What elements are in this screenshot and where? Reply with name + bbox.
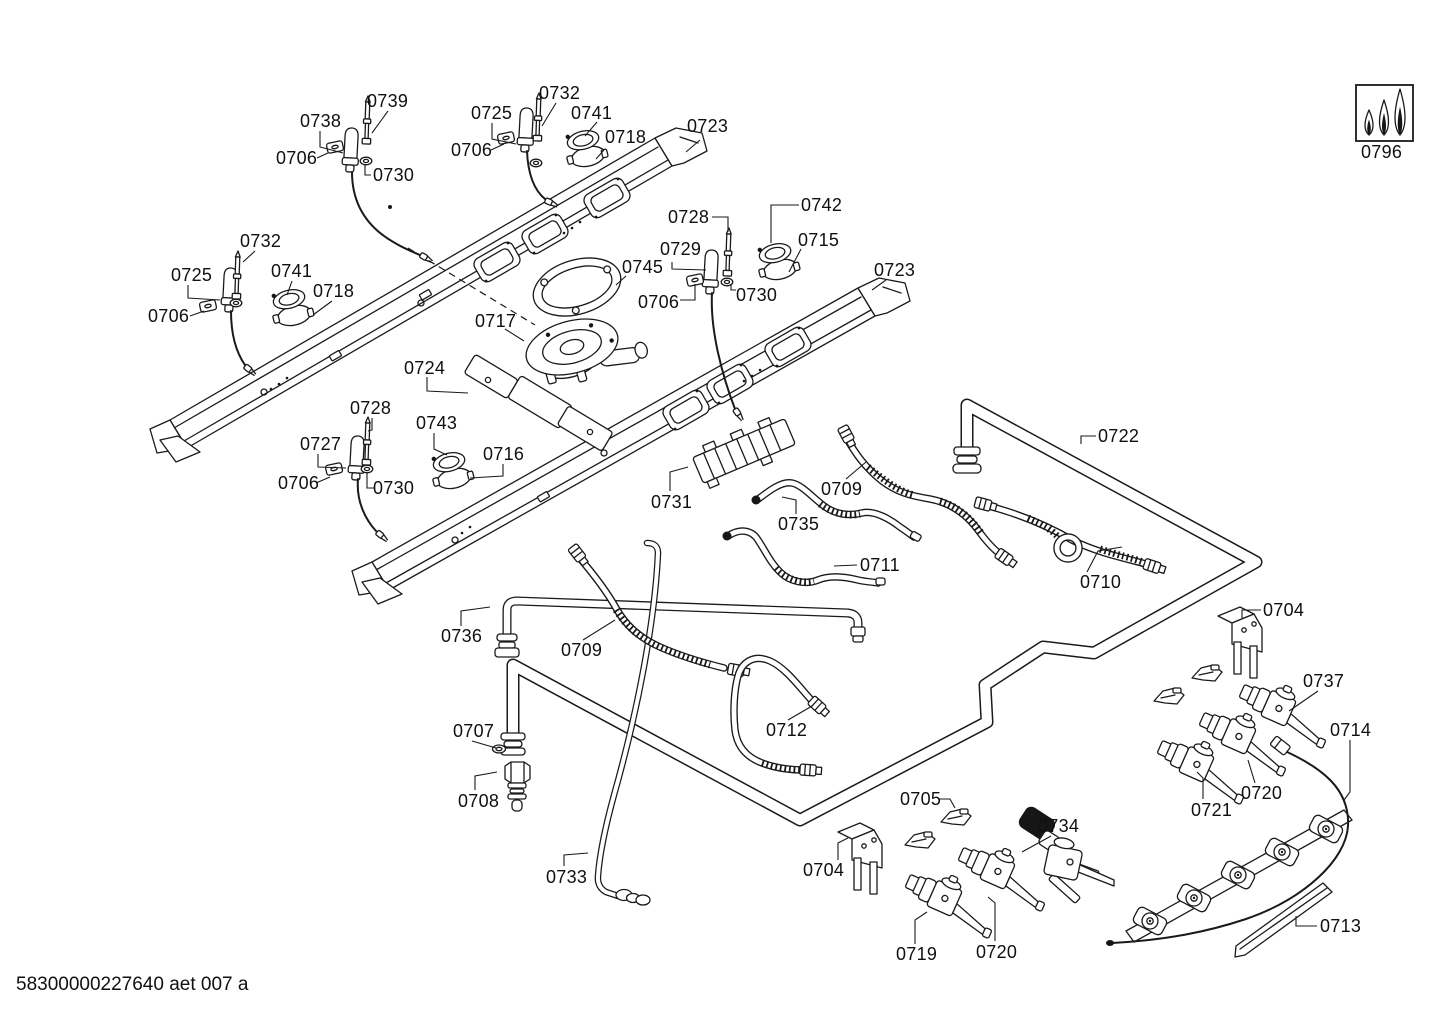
part-label-0737: 0737 [1303, 672, 1344, 690]
part-label-0713: 0713 [1320, 917, 1361, 935]
part-label-0721: 0721 [1191, 801, 1232, 819]
leader-line-0720 [1248, 760, 1255, 783]
leader-line-0731 [670, 467, 688, 491]
leader-line-0739 [372, 111, 388, 133]
leader-line-0742 [771, 205, 799, 243]
leader-line-0732 [542, 103, 556, 126]
part-label-0730: 0730 [373, 166, 414, 184]
leader-line-0733 [564, 853, 588, 866]
leader-line-0707 [472, 741, 496, 748]
leader-line-0719 [915, 912, 927, 944]
leader-line-0716 [470, 464, 503, 478]
part-label-0723: 0723 [874, 261, 915, 279]
part-label-0741: 0741 [271, 262, 312, 280]
leader-line-0728 [712, 217, 728, 232]
part-label-0736: 0736 [441, 627, 482, 645]
leader-line-0705 [939, 799, 955, 808]
leader-line-0729 [672, 262, 706, 270]
part-label-0725: 0725 [171, 266, 212, 284]
part-label-0730: 0730 [373, 479, 414, 497]
clip-0705 [1192, 665, 1222, 681]
part-label-0734: 0734 [1038, 817, 1079, 835]
part-label-0731: 0731 [651, 493, 692, 511]
part-label-0711: 0711 [860, 556, 900, 574]
leader-line-0725 [188, 285, 220, 300]
leader-line-0730 [365, 165, 371, 175]
leader-line-0706 [491, 144, 504, 150]
part-label-0717: 0717 [475, 312, 516, 330]
leader-line-0711 [834, 565, 857, 566]
part-label-0709: 0709 [821, 480, 862, 498]
part-label-0732: 0732 [240, 232, 281, 250]
part-label-0724: 0724 [404, 359, 445, 377]
leader-line-0712 [788, 706, 812, 720]
flame-icon [1356, 85, 1413, 141]
part-label-0706: 0706 [638, 293, 679, 311]
part-label-0732: 0732 [539, 84, 580, 102]
leader-line-0732 [243, 251, 255, 262]
part-label-0709: 0709 [561, 641, 602, 659]
leader-line-0743 [434, 433, 447, 455]
part-label-0706: 0706 [451, 141, 492, 159]
part-label-0730: 0730 [736, 286, 777, 304]
part-label-0729: 0729 [660, 240, 701, 258]
leader-line-0704 [838, 838, 848, 860]
part-label-0707: 0707 [453, 722, 494, 740]
part-label-0716: 0716 [483, 445, 524, 463]
part-label-0704: 0704 [1263, 601, 1304, 619]
part-label-0712: 0712 [766, 721, 807, 739]
part-label-0728: 0728 [350, 399, 391, 417]
part-label-0796: 0796 [1361, 143, 1402, 161]
leader-line-0713 [1296, 916, 1317, 926]
leader-line-0736 [461, 607, 490, 626]
part-label-0735: 0735 [778, 515, 819, 533]
parts-diagram-page: 0738073907320725074107180723070607060730… [0, 0, 1442, 1019]
leader-line-0708 [475, 772, 497, 790]
leader-line-0709 [583, 620, 615, 640]
burner-0718-top [561, 126, 609, 170]
burner-0716 [427, 448, 475, 492]
leader-line-0709 [846, 462, 866, 479]
part-label-0728: 0728 [668, 208, 709, 226]
document-code: 58300000227640 aet 007 a [16, 974, 248, 996]
part-label-0739: 0739 [367, 92, 408, 110]
part-label-0718: 0718 [313, 282, 354, 300]
part-label-0741: 0741 [571, 104, 612, 122]
part-label-0745: 0745 [622, 258, 663, 276]
wok-ring-0745 [526, 248, 628, 326]
part-label-0725: 0725 [471, 104, 512, 122]
leader-line-0706 [680, 284, 695, 300]
clip-0705 [941, 809, 971, 825]
burner-0718-left [267, 285, 315, 329]
part-label-0742: 0742 [801, 196, 842, 214]
part-label-0727: 0727 [300, 435, 341, 453]
part-label-0714: 0714 [1330, 721, 1371, 739]
clip-0705 [1154, 688, 1184, 704]
part-label-0718: 0718 [605, 128, 646, 146]
part-label-0743: 0743 [416, 414, 457, 432]
bracket-0704-left [838, 823, 882, 894]
hose-0709-upper [837, 424, 1018, 569]
part-label-0704: 0704 [803, 861, 844, 879]
leader-line-0714 [1344, 740, 1350, 800]
part-label-0706: 0706 [276, 149, 317, 167]
part-label-0708: 0708 [458, 792, 499, 810]
leader-line-0722 [1081, 436, 1096, 444]
exploded-parts-drawing [0, 0, 1442, 1019]
terminal-block-0731 [690, 412, 798, 490]
part-label-0723: 0723 [687, 117, 728, 135]
part-label-0719: 0719 [896, 945, 937, 963]
part-label-0715: 0715 [798, 231, 839, 249]
part-label-0733: 0733 [546, 868, 587, 886]
support-rail-middle [352, 278, 910, 604]
trim-strip-0713 [1235, 883, 1332, 957]
leader-line-0706 [190, 311, 204, 316]
leader-line-0735 [782, 497, 796, 514]
part-label-0710: 0710 [1080, 573, 1121, 591]
part-label-0705: 0705 [900, 790, 941, 808]
bracket-0704-right [1218, 607, 1262, 678]
burner-assembly-0717 [520, 303, 651, 394]
pipe-0736 [495, 601, 865, 657]
leader-line-0706 [317, 153, 328, 158]
leader-line-0724 [427, 377, 468, 393]
part-label-0706: 0706 [148, 307, 189, 325]
part-label-0722: 0722 [1098, 427, 1139, 445]
part-label-0720: 0720 [1241, 784, 1282, 802]
part-label-0738: 0738 [300, 112, 341, 130]
part-label-0720: 0720 [976, 943, 1017, 961]
leader-line-0718 [313, 301, 332, 315]
clip-0705 [905, 832, 935, 848]
part-label-0706: 0706 [278, 474, 319, 492]
